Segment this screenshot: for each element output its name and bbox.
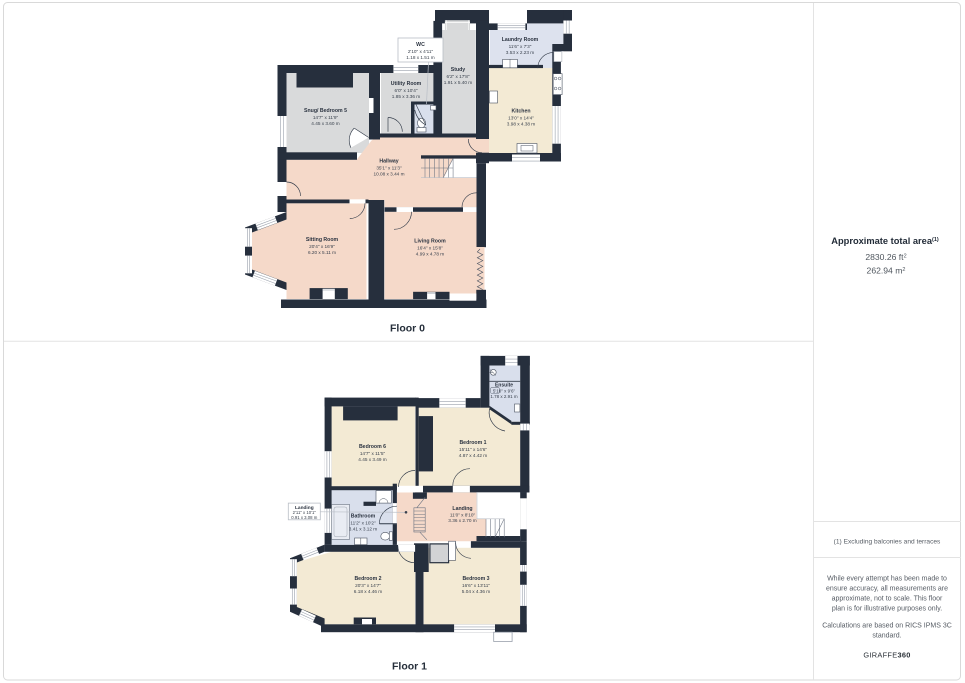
svg-text:16'4" x 15'8": 16'4" x 15'8" [417, 246, 443, 251]
svg-text:(1) Excluding balconies and te: (1) Excluding balconies and terraces [834, 539, 941, 546]
svg-text:1.18 x 1.51 m: 1.18 x 1.51 m [406, 55, 434, 60]
svg-text:35'1" x 11'3": 35'1" x 11'3" [376, 166, 402, 171]
svg-text:13'0" x 14'4": 13'0" x 14'4" [508, 116, 534, 121]
svg-text:2'10" x 4'11": 2'10" x 4'11" [408, 49, 434, 54]
svg-text:15'11" x 14'6": 15'11" x 14'6" [459, 447, 487, 452]
svg-text:1.78 x 2.91 m: 1.78 x 2.91 m [490, 394, 518, 399]
svg-text:While every attempt has been m: While every attempt has been made to [827, 576, 947, 583]
svg-text:Living Room: Living Room [414, 239, 446, 245]
svg-text:Landing: Landing [452, 506, 472, 512]
svg-text:6'0" x 10'4": 6'0" x 10'4" [394, 88, 417, 93]
svg-text:262.94 m2: 262.94 m2 [867, 266, 906, 276]
svg-text:1.91 x 5.40 m: 1.91 x 5.40 m [444, 80, 472, 85]
svg-text:6.18 x 4.46 m: 6.18 x 4.46 m [354, 589, 382, 594]
svg-text:3.53 x 2.23 m: 3.53 x 2.23 m [506, 50, 534, 55]
svg-text:3.36 x 2.70 m: 3.36 x 2.70 m [448, 518, 476, 523]
svg-text:Snug/ Bedroom 5: Snug/ Bedroom 5 [304, 108, 347, 114]
svg-text:6.20 x 5.11 m: 6.20 x 5.11 m [308, 250, 336, 255]
svg-text:standard.: standard. [872, 633, 901, 640]
svg-text:5'10" x 9'6": 5'10" x 9'6" [493, 389, 516, 394]
svg-text:14'7" x 11'5": 14'7" x 11'5" [360, 451, 386, 456]
svg-text:Laundry Room: Laundry Room [502, 37, 539, 43]
svg-text:Kitchen: Kitchen [511, 109, 530, 115]
svg-text:Sitting Room: Sitting Room [306, 237, 339, 243]
svg-text:4.87 x 4.42 m: 4.87 x 4.42 m [459, 453, 487, 458]
svg-text:Bedroom 1: Bedroom 1 [459, 440, 486, 446]
svg-text:20'4" x 16'9": 20'4" x 16'9" [309, 244, 335, 249]
svg-text:3.98 x 4.38 m: 3.98 x 4.38 m [507, 122, 535, 127]
svg-text:10.08 x 3.44 m: 10.08 x 3.44 m [373, 172, 404, 177]
svg-text:4.45 x 3.49 m: 4.45 x 3.49 m [358, 457, 386, 462]
svg-text:0.91 x 3.08 m: 0.91 x 3.08 m [291, 515, 317, 520]
svg-text:11'6" x 7'3": 11'6" x 7'3" [509, 44, 532, 49]
svg-text:Floor 1: Floor 1 [392, 661, 427, 673]
svg-text:approximate, not to scale. Thi: approximate, not to scale. This floor [832, 596, 943, 603]
svg-text:ensure accuracy, all measureme: ensure accuracy, all measurements are [826, 586, 948, 593]
svg-text:16'6" x 13'11": 16'6" x 13'11" [462, 583, 490, 588]
svg-text:Bathroom: Bathroom [351, 514, 376, 520]
svg-text:Calculations are based on RICS: Calculations are based on RICS IPMS 3C [822, 623, 952, 630]
svg-text:4.99 x 4.78 m: 4.99 x 4.78 m [416, 252, 444, 257]
svg-text:14'7" x 11'9": 14'7" x 11'9" [313, 115, 339, 120]
svg-text:11'0" x 8'10": 11'0" x 8'10" [450, 513, 476, 518]
svg-text:plan is for illustrative purpo: plan is for illustrative purposes only. [832, 606, 942, 613]
svg-text:Utility Room: Utility Room [391, 81, 422, 87]
svg-text:4.45 x 3.60 m: 4.45 x 3.60 m [311, 121, 339, 126]
svg-text:3.41 x 3.12 m: 3.41 x 3.12 m [349, 527, 377, 532]
svg-text:Bedroom 2: Bedroom 2 [354, 576, 381, 582]
svg-text:Floor 0: Floor 0 [390, 323, 425, 335]
svg-text:2830.26 ft2: 2830.26 ft2 [865, 252, 906, 262]
svg-text:20'3" x 14'7": 20'3" x 14'7" [355, 583, 381, 588]
svg-text:Bedroom 6: Bedroom 6 [359, 444, 386, 450]
svg-text:Bedroom 3: Bedroom 3 [462, 576, 489, 582]
svg-text:11'2" x 10'2": 11'2" x 10'2" [350, 521, 376, 526]
svg-text:5.04 x 4.36 m: 5.04 x 4.36 m [462, 589, 490, 594]
svg-text:6'2" x 17'8": 6'2" x 17'8" [446, 74, 469, 79]
svg-text:Approximate total area(1): Approximate total area(1) [831, 236, 939, 246]
svg-text:Study: Study [451, 67, 466, 73]
svg-text:1.85 x 3.36 m: 1.85 x 3.36 m [392, 94, 420, 99]
svg-text:Hallway: Hallway [379, 159, 398, 165]
svg-text:GIRAFFE360: GIRAFFE360 [863, 651, 910, 660]
svg-text:WC: WC [416, 42, 425, 48]
